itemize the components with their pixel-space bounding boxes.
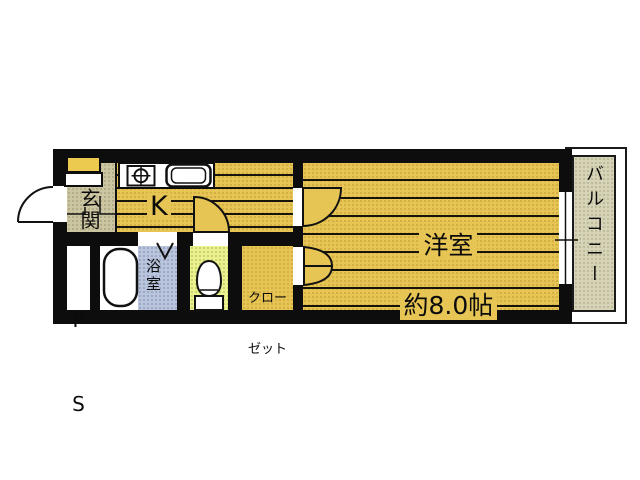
wall-vert-b [293, 226, 303, 247]
ps-line1: P [67, 306, 90, 334]
western-room-size: 約8.0帖 [400, 291, 498, 320]
wall-bath-toilet [177, 246, 190, 310]
kitchen-counter [118, 162, 215, 189]
closet-line1: クロー [242, 290, 293, 307]
room-toilet [190, 246, 228, 310]
wall-genkan-kitchen [115, 163, 117, 232]
genkan-label: 玄関 [79, 188, 99, 232]
pipe-space-label: P S [67, 250, 90, 474]
wall-vert-a [293, 163, 303, 188]
wall-toilet-closet [228, 246, 242, 310]
wall-mid-b [177, 232, 193, 246]
opening-room-door [293, 188, 303, 226]
bathroom-label: 浴室 [145, 258, 160, 294]
opening-entrance [53, 186, 67, 222]
wall-left-lower [53, 222, 67, 324]
storage-cabinet-icon [64, 172, 103, 187]
balcony-label: バルコニー [584, 164, 602, 289]
entrance-door-swing [18, 187, 53, 222]
kitchen-label: K [147, 193, 171, 220]
floor-plan: 玄関 K 洋室 約8.0帖 P S 浴室 クロー ゼット バルコニー [0, 0, 640, 480]
closet-label: クロー ゼット [242, 256, 293, 392]
wall-vert-c [293, 285, 303, 310]
wall-mid-a [67, 232, 138, 246]
opening-window [559, 192, 572, 284]
opening-toilet [193, 232, 228, 246]
western-room-label: 洋室 約8.0帖 [340, 201, 525, 351]
opening-bathroom [138, 232, 177, 246]
western-room-name: 洋室 [419, 231, 477, 260]
opening-closet-door [293, 247, 303, 285]
ps-line2: S [67, 390, 90, 418]
shoe-cabinet-icon [66, 156, 101, 173]
closet-line2: ゼット [242, 341, 293, 358]
wall-mid-c [228, 232, 303, 246]
wall-top [53, 149, 572, 163]
